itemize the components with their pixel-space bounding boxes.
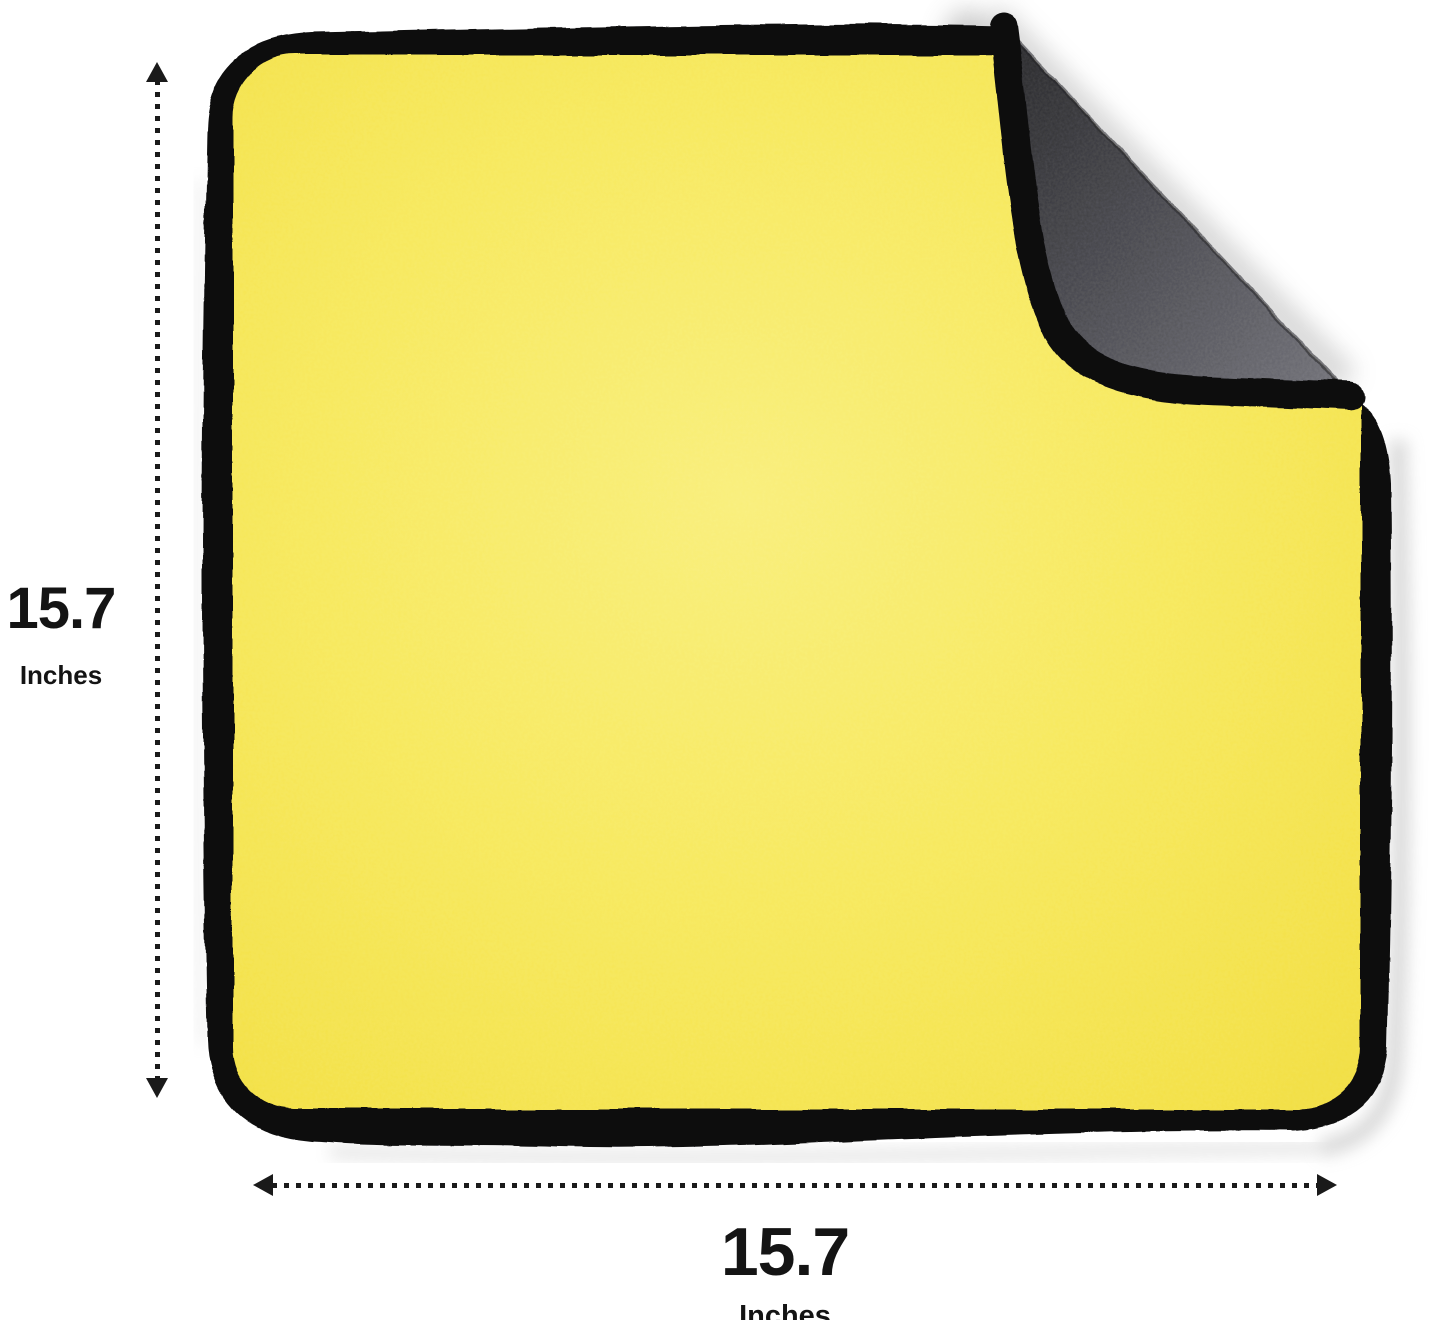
vertical-dimension-label: 15.7 Inches	[0, 580, 122, 691]
vertical-dimension-unit: Inches	[0, 660, 122, 691]
vertical-dimension-value: 15.7	[0, 580, 122, 638]
arrow-right-icon	[1317, 1174, 1337, 1196]
horizontal-dimension-label: 15.7 Inches	[650, 1218, 920, 1320]
horizontal-dotted-line	[272, 1183, 1318, 1188]
vertical-dotted-line	[155, 80, 160, 1078]
arrow-down-icon	[146, 1078, 168, 1098]
product-dimension-figure: 15.7 Inches 15.7 Inches	[0, 0, 1445, 1320]
arrow-up-icon	[146, 62, 168, 82]
arrow-left-icon	[253, 1174, 273, 1196]
horizontal-dimension-unit: Inches	[650, 1300, 920, 1320]
towel-photo	[0, 0, 1445, 1320]
horizontal-dimension-value: 15.7	[650, 1218, 920, 1286]
